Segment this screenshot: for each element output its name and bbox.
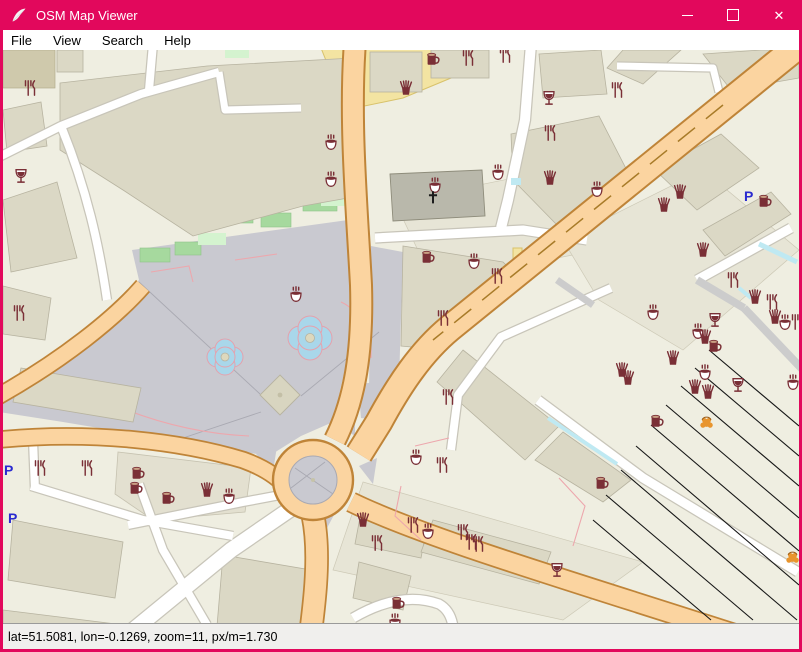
feather-icon <box>11 7 27 23</box>
map-viewport[interactable]: PPP <box>3 50 799 623</box>
title-bar: OSM Map Viewer ✕ <box>0 0 802 30</box>
maximize-button[interactable] <box>710 0 756 30</box>
status-bar: lat=51.5081, lon=-0.1269, zoom=11, px/m=… <box>3 623 799 649</box>
menu-view[interactable]: View <box>53 33 81 48</box>
coordinates-readout: lat=51.5081, lon=-0.1269, zoom=11, px/m=… <box>8 630 277 644</box>
parking-icon: P <box>4 462 13 478</box>
maximize-icon <box>727 9 739 21</box>
window-title: OSM Map Viewer <box>36 8 664 23</box>
close-button[interactable]: ✕ <box>756 0 802 30</box>
roundabout <box>273 440 353 520</box>
minimize-button[interactable] <box>664 0 710 30</box>
map-canvas[interactable]: PPP <box>3 50 799 623</box>
parking-icon: P <box>8 510 17 526</box>
app-window: OSM Map Viewer ✕ FileViewSearchHelp <box>0 0 802 652</box>
window-controls: ✕ <box>664 0 802 30</box>
menu-search[interactable]: Search <box>102 33 143 48</box>
parking-icon: P <box>744 188 753 204</box>
close-icon: ✕ <box>774 9 785 22</box>
menu-bar: FileViewSearchHelp <box>3 30 799 50</box>
minimize-icon <box>682 15 693 16</box>
menu-help[interactable]: Help <box>164 33 191 48</box>
menu-file[interactable]: File <box>11 33 32 48</box>
